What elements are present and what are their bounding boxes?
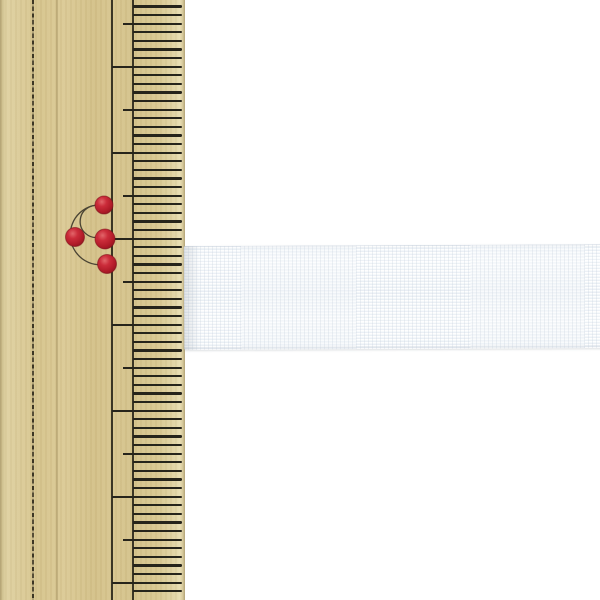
ruler-red-marks — [0, 0, 185, 600]
red-paint-dot — [98, 255, 117, 274]
red-paint-dot — [95, 196, 113, 214]
wooden-ruler — [0, 0, 185, 600]
tape-left-shadow — [184, 246, 200, 350]
product-photo — [0, 0, 600, 600]
white-tape — [184, 244, 600, 350]
red-paint-dot — [66, 228, 85, 247]
red-paint-dot — [95, 229, 115, 249]
